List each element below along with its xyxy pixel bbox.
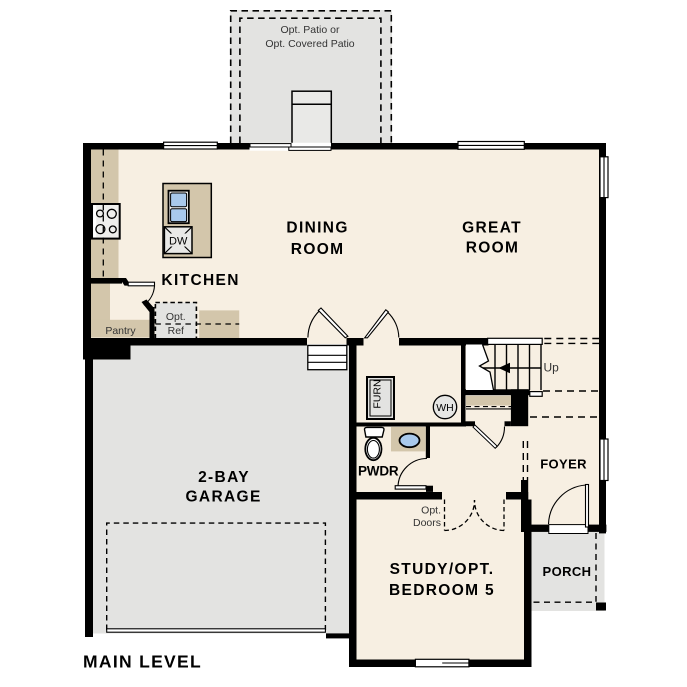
- svg-text:2-BAY: 2-BAY: [198, 469, 250, 486]
- svg-text:Pantry: Pantry: [105, 325, 136, 337]
- svg-text:Ref: Ref: [168, 325, 184, 337]
- svg-text:Doors: Doors: [413, 517, 441, 529]
- svg-text:MAIN LEVEL: MAIN LEVEL: [83, 652, 202, 672]
- svg-text:Opt. Covered Patio: Opt. Covered Patio: [265, 38, 354, 50]
- svg-text:GARAGE: GARAGE: [186, 489, 262, 506]
- svg-text:Opt.: Opt.: [421, 504, 441, 516]
- svg-text:ROOM: ROOM: [466, 239, 520, 256]
- svg-text:FURN: FURN: [372, 379, 384, 408]
- svg-text:STUDY/OPT.: STUDY/OPT.: [390, 561, 495, 578]
- svg-text:KITCHEN: KITCHEN: [161, 272, 239, 289]
- svg-text:Opt. Patio or: Opt. Patio or: [281, 24, 340, 36]
- svg-text:PORCH: PORCH: [543, 564, 592, 579]
- svg-text:WH: WH: [436, 402, 454, 414]
- svg-text:GREAT: GREAT: [462, 219, 522, 236]
- svg-text:FOYER: FOYER: [540, 457, 587, 472]
- svg-text:BEDROOM 5: BEDROOM 5: [389, 582, 495, 599]
- svg-text:Up: Up: [544, 361, 560, 375]
- svg-text:DW: DW: [169, 236, 188, 248]
- svg-text:Opt.: Opt.: [166, 311, 186, 323]
- svg-text:DINING: DINING: [286, 219, 348, 236]
- svg-text:ROOM: ROOM: [291, 241, 345, 258]
- svg-text:PWDR: PWDR: [358, 463, 399, 478]
